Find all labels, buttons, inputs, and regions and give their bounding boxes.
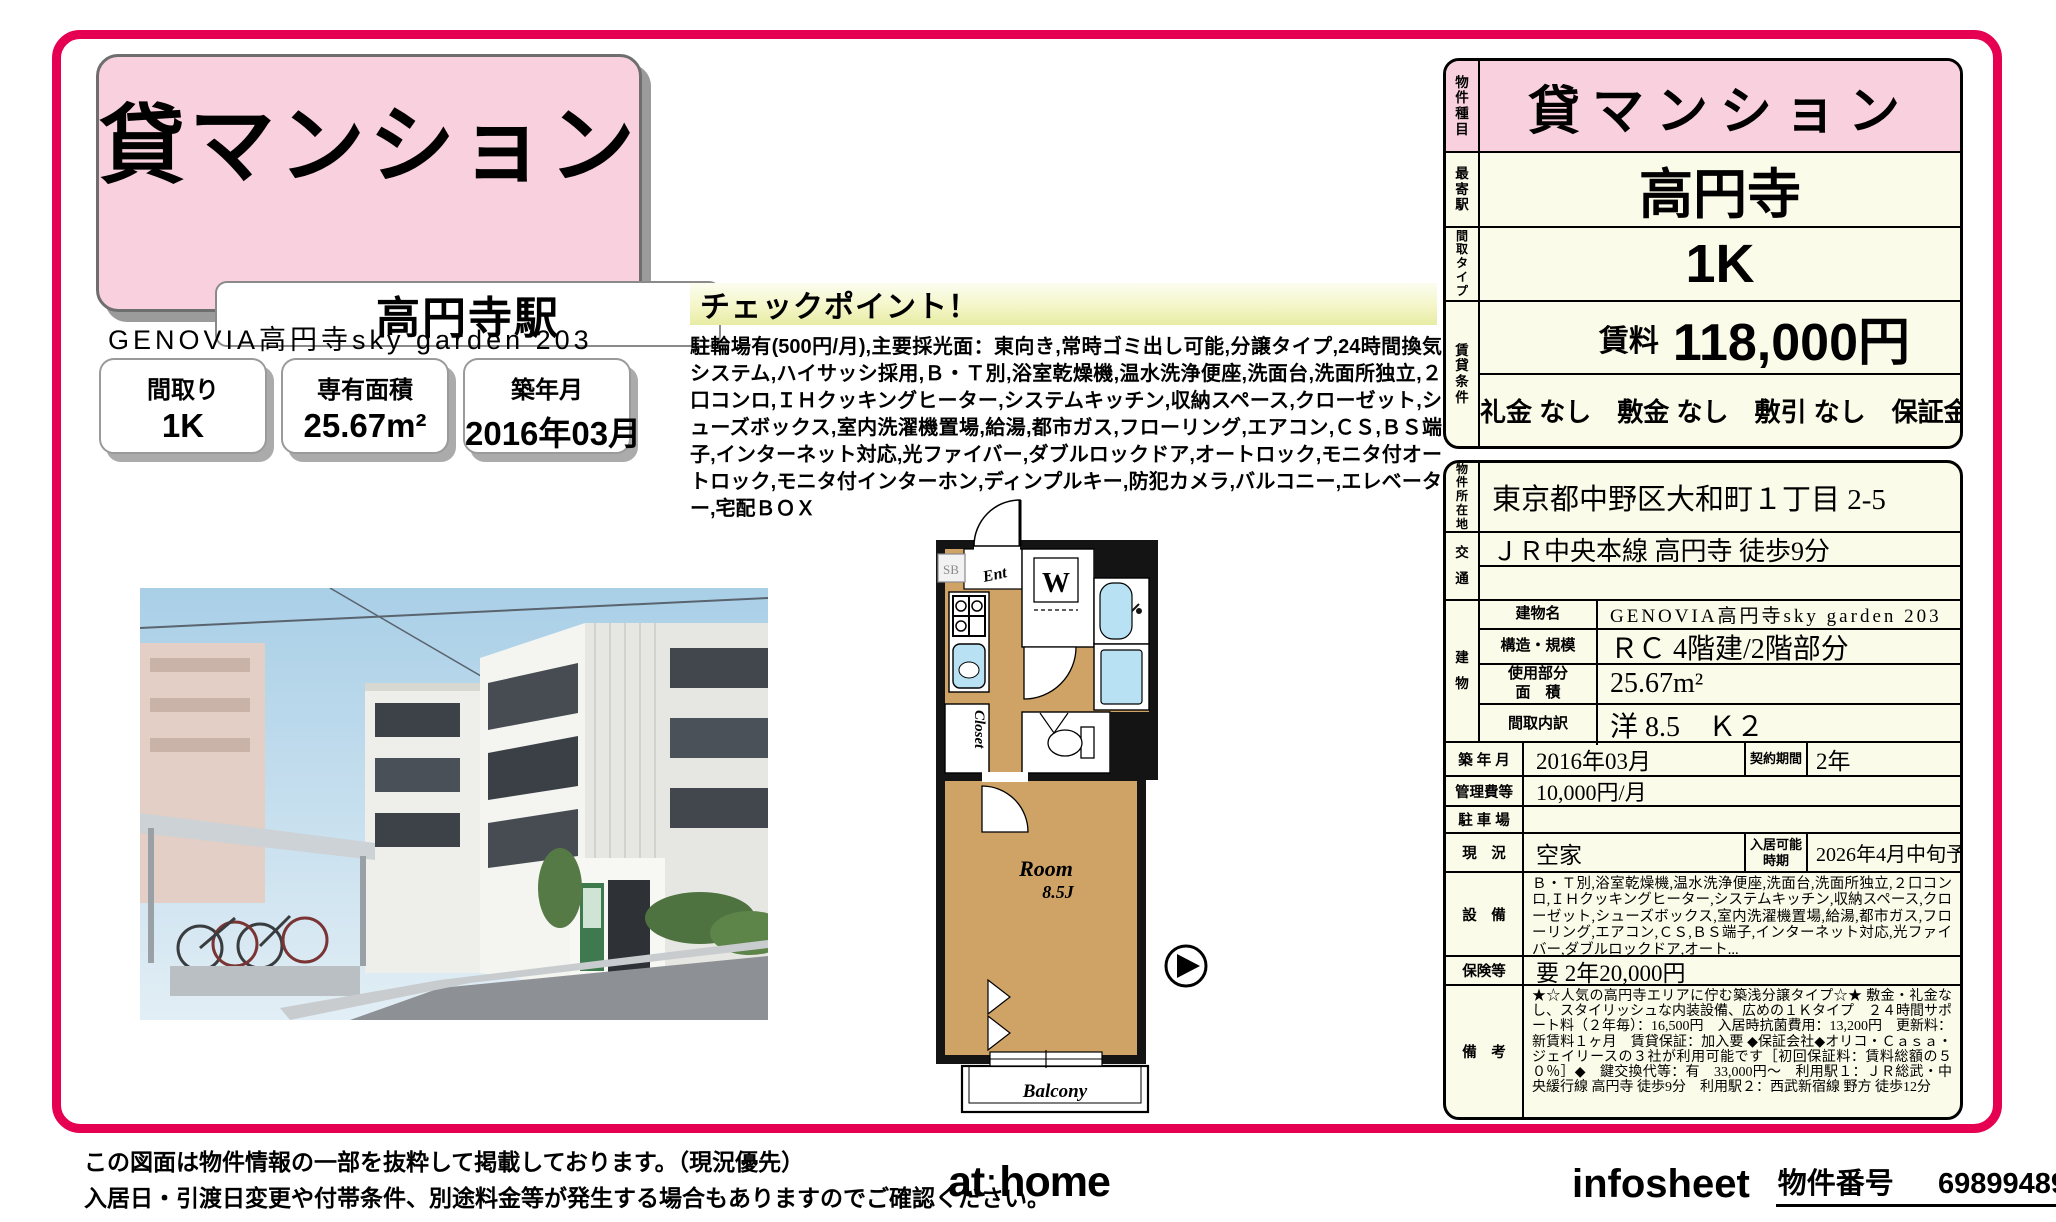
badge-area: 専有面積 25.67m² xyxy=(281,358,449,454)
row-fee: 管理費等 10,000円/月 xyxy=(1446,777,1960,807)
row-equipment: 設 備 Ｂ・Ｔ別,浴室乾燥機,温水洗浄便座,洗面台,洗面所独立,２口コンロ,ＩＨ… xyxy=(1446,873,1960,957)
nearest-station-value: 高円寺 xyxy=(1639,150,1801,229)
property-number-value: 69899489077 xyxy=(1938,1168,2056,1200)
equipment-label: 設 備 xyxy=(1446,873,1524,955)
property-number-label: 物件番号 xyxy=(1778,1168,1894,1200)
plan-type-value: 1K xyxy=(1685,233,1754,295)
floorplan-toilet xyxy=(1022,712,1149,773)
movein-value: 2026年4月中旬予定 xyxy=(1808,834,1960,871)
badge-built: 築年月 2016年03月 xyxy=(463,358,631,454)
svg-text:W: W xyxy=(1042,568,1070,599)
svg-text:SB: SB xyxy=(943,562,959,577)
row-building-group: 建物 建物名 GENOVIA高円寺sky garden 203 構造・規模 ＲＣ… xyxy=(1446,601,1960,743)
location-value: 東京都中野区大和町１丁目 2-5 xyxy=(1480,463,1960,531)
built-label: 築 年 月 xyxy=(1446,743,1524,775)
athome-logo: at · home xyxy=(948,1158,1110,1207)
disclaimer-line-2: 入居日・引渡日変更や付帯条件、別途料金等が発生する場合もありますのでご確認くださ… xyxy=(84,1179,1050,1213)
parking-value xyxy=(1524,807,1960,832)
compass-icon xyxy=(1166,946,1206,986)
badge-built-value: 2016年03月 xyxy=(465,407,629,455)
floorplan-washbasin xyxy=(1094,578,1149,644)
row-plan-type: 間取タイプ 1K xyxy=(1446,228,1960,302)
used-area-value: 25.67m² xyxy=(1598,665,1960,703)
row-insurance: 保険等 要 2年20,000円 xyxy=(1446,957,1960,986)
used-area-label: 使用部分 面 積 xyxy=(1480,665,1598,703)
insurance-label: 保険等 xyxy=(1446,957,1524,984)
category-title: 貸マンション xyxy=(99,75,639,200)
nearest-station-label: 最寄駅 xyxy=(1455,166,1469,213)
parking-label: 駐 車 場 xyxy=(1446,807,1524,832)
floorplan-balcony: Balcony xyxy=(962,1066,1148,1112)
floor-plan: Balcony Closet xyxy=(918,494,1238,1124)
row-nearest-station: 最寄駅 高円寺 xyxy=(1446,153,1960,228)
row-location: 物件所在地 東京都中野区大和町１丁目 2-5 xyxy=(1446,463,1960,533)
property-type-label: 物件種目 xyxy=(1455,75,1469,137)
detail-table: 物件所在地 東京都中野区大和町１丁目 2-5 交通 ＪＲ中央本線 高円寺 徒歩9… xyxy=(1443,460,1963,1120)
structure-value: ＲＣ 4階建/2階部分 xyxy=(1598,630,1960,663)
contract-label: 契約期間 xyxy=(1744,743,1808,775)
badge-built-label: 築年月 xyxy=(465,370,629,405)
floorplan-bath xyxy=(1094,644,1149,710)
row-built: 築 年 月 2016年03月 契約期間 2年 xyxy=(1446,743,1960,777)
floorplan-kitchen xyxy=(949,592,989,692)
badge-madori-label: 間取り xyxy=(101,370,265,405)
disclaimer-line-1: この図面は物件情報の一部を抜粋して掲載しております。（現況優先） xyxy=(84,1143,804,1177)
row-layout-detail: 間取内訳 洋 8.5 Ｋ２ xyxy=(1480,705,1960,745)
category-banner: 貸マンション 高円寺駅 xyxy=(96,54,642,312)
structure-label: 構造・規模 xyxy=(1480,630,1598,663)
building-name-value: GENOVIA高円寺sky garden 203 xyxy=(1598,601,1960,628)
building-photo xyxy=(140,588,768,1020)
status-label: 現 況 xyxy=(1446,834,1524,871)
floorplan-window xyxy=(990,1050,1102,1068)
row-used-area: 使用部分 面 積 25.67m² xyxy=(1480,665,1960,705)
badge-madori-value: 1K xyxy=(101,407,265,445)
rent-terms-label: 賃貸条件 xyxy=(1455,343,1469,405)
contract-value: 2年 xyxy=(1808,743,1960,775)
svg-text:Balcony: Balcony xyxy=(1022,1081,1088,1102)
athome-logo-at: at xyxy=(948,1158,984,1207)
summary-table: 物件種目 貸マンション 最寄駅 高円寺 間取タイプ 1K 賃貸条件 賃料 118… xyxy=(1443,58,1963,449)
svg-text:Closet: Closet xyxy=(971,710,987,749)
row-status: 現 況 空家 入居可能 時期 2026年4月中旬予定 xyxy=(1446,834,1960,873)
floorplan-shoebox: SB xyxy=(938,554,965,582)
deposit-terms: 礼金 なし 敷金 なし 敷引 なし 保証金 なし xyxy=(1480,392,1963,429)
checkpoint-title: チェックポイント！ xyxy=(690,282,979,326)
svg-text:Room: Room xyxy=(1018,856,1073,881)
floorplan-closet: Closet xyxy=(945,704,989,773)
row-access: 交通 ＪＲ中央本線 高円寺 徒歩9分 xyxy=(1446,533,1960,601)
badge-madori: 間取り 1K xyxy=(99,358,267,454)
movein-label: 入居可能 時期 xyxy=(1744,834,1808,871)
row-structure: 構造・規模 ＲＣ 4階建/2階部分 xyxy=(1480,630,1960,665)
infosheet-block: infosheet 物件番号 69899489077 xyxy=(1572,1160,2056,1207)
building-group-label: 建物 xyxy=(1455,645,1469,696)
row-property-type: 物件種目 貸マンション xyxy=(1446,61,1960,153)
property-number: 物件番号 69899489077 xyxy=(1776,1160,2056,1207)
location-label: 物件所在地 xyxy=(1456,463,1469,532)
equipment-value: Ｂ・Ｔ別,浴室乾燥機,温水洗浄便座,洗面台,洗面所独立,２口コンロ,ＩＨクッキン… xyxy=(1524,873,1960,955)
row-remarks: 備 考 ★☆人気の高円寺エリアに佇む築浅分譲タイプ☆★ 敷金・礼金なし、スタイリ… xyxy=(1446,986,1960,1117)
building-name-line: GENOVIA高円寺sky garden 203 xyxy=(108,318,648,357)
insurance-value: 要 2年20,000円 xyxy=(1524,957,1960,984)
row-parking: 駐 車 場 xyxy=(1446,807,1960,834)
badge-area-label: 専有面積 xyxy=(283,370,447,405)
layout-detail-value: 洋 8.5 Ｋ２ xyxy=(1598,705,1960,745)
building-name-label: 建物名 xyxy=(1480,601,1598,628)
row-rent-terms: 賃貸条件 賃料 118,000円 礼金 なし 敷金 なし 敷引 なし 保証金 な… xyxy=(1446,302,1960,446)
floorplan-washer: W xyxy=(1034,558,1078,610)
plan-type-label: 間取タイプ xyxy=(1456,230,1469,299)
rent-value: 118,000円 xyxy=(1673,300,1910,375)
infosheet-label: infosheet xyxy=(1572,1162,1750,1207)
badge-area-value: 25.67m² xyxy=(283,407,447,445)
svg-text:8.5J: 8.5J xyxy=(1042,882,1075,902)
access-label: 交通 xyxy=(1455,540,1469,591)
property-type-value: 貸マンション xyxy=(1528,69,1912,144)
access-value-2 xyxy=(1480,567,1960,599)
built-value: 2016年03月 xyxy=(1524,743,1744,775)
layout-detail-label: 間取内訳 xyxy=(1480,705,1598,745)
remarks-value: ★☆人気の高円寺エリアに佇む築浅分譲タイプ☆★ 敷金・礼金なし、スタイリッシュな… xyxy=(1524,986,1960,1117)
athome-logo-home: home xyxy=(999,1158,1110,1207)
fee-value: 10,000円/月 xyxy=(1524,777,1960,805)
access-value: ＪＲ中央本線 高円寺 徒歩9分 xyxy=(1480,533,1960,567)
remarks-label: 備 考 xyxy=(1446,986,1524,1117)
checkpoint-band: チェックポイント！ xyxy=(690,283,1437,325)
status-value: 空家 xyxy=(1524,834,1744,871)
athome-logo-dot-icon: · xyxy=(987,1161,996,1195)
rent-label: 賃料 xyxy=(1599,316,1659,360)
fee-label: 管理費等 xyxy=(1446,777,1524,805)
